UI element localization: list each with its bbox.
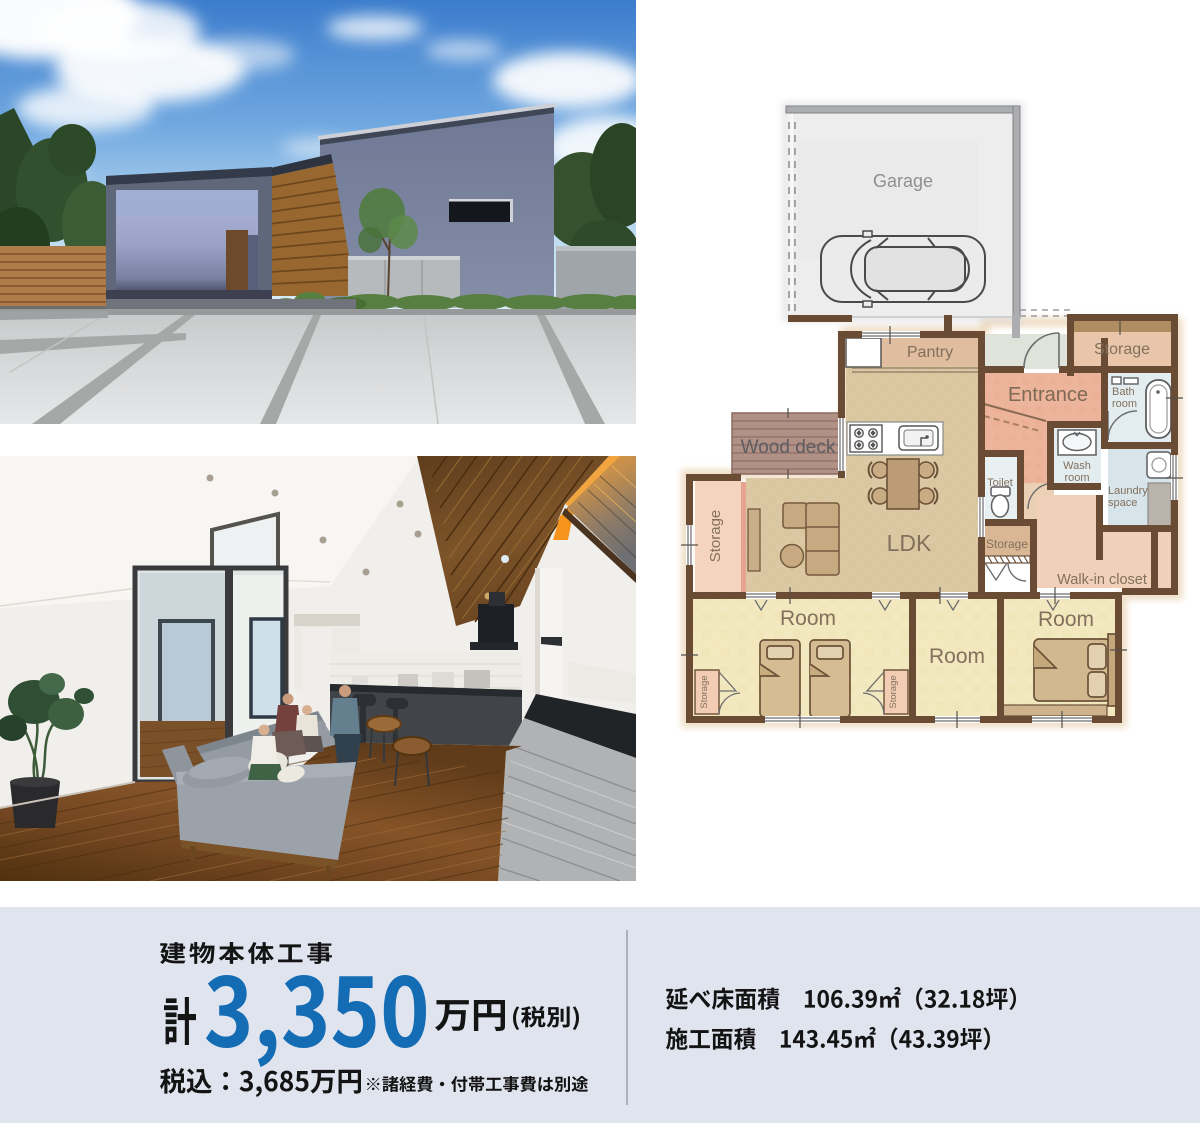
- svg-text:Wash: Wash: [1063, 460, 1091, 472]
- svg-text:space: space: [1108, 497, 1137, 509]
- svg-text:Laundry: Laundry: [1108, 485, 1148, 497]
- svg-text:Storage: Storage: [707, 510, 724, 563]
- svg-text:Storage: Storage: [699, 675, 710, 708]
- svg-text:Storage: Storage: [986, 537, 1028, 551]
- svg-text:LDK: LDK: [887, 530, 932, 556]
- svg-text:Room: Room: [1038, 608, 1094, 631]
- svg-text:Toilet: Toilet: [987, 477, 1013, 489]
- svg-text:Entrance: Entrance: [1008, 384, 1088, 406]
- svg-text:Storage: Storage: [888, 675, 899, 708]
- svg-text:Garage: Garage: [873, 171, 933, 191]
- svg-text:Room: Room: [780, 607, 836, 630]
- svg-text:room: room: [1064, 472, 1089, 484]
- svg-text:Pantry: Pantry: [907, 344, 953, 361]
- svg-text:Room: Room: [929, 645, 985, 668]
- svg-text:Storage: Storage: [1094, 341, 1150, 358]
- svg-text:Walk-in closet: Walk-in closet: [1057, 572, 1147, 588]
- svg-text:Wood deck: Wood deck: [741, 437, 836, 458]
- svg-text:Bath: Bath: [1112, 386, 1135, 398]
- svg-text:room: room: [1112, 398, 1137, 410]
